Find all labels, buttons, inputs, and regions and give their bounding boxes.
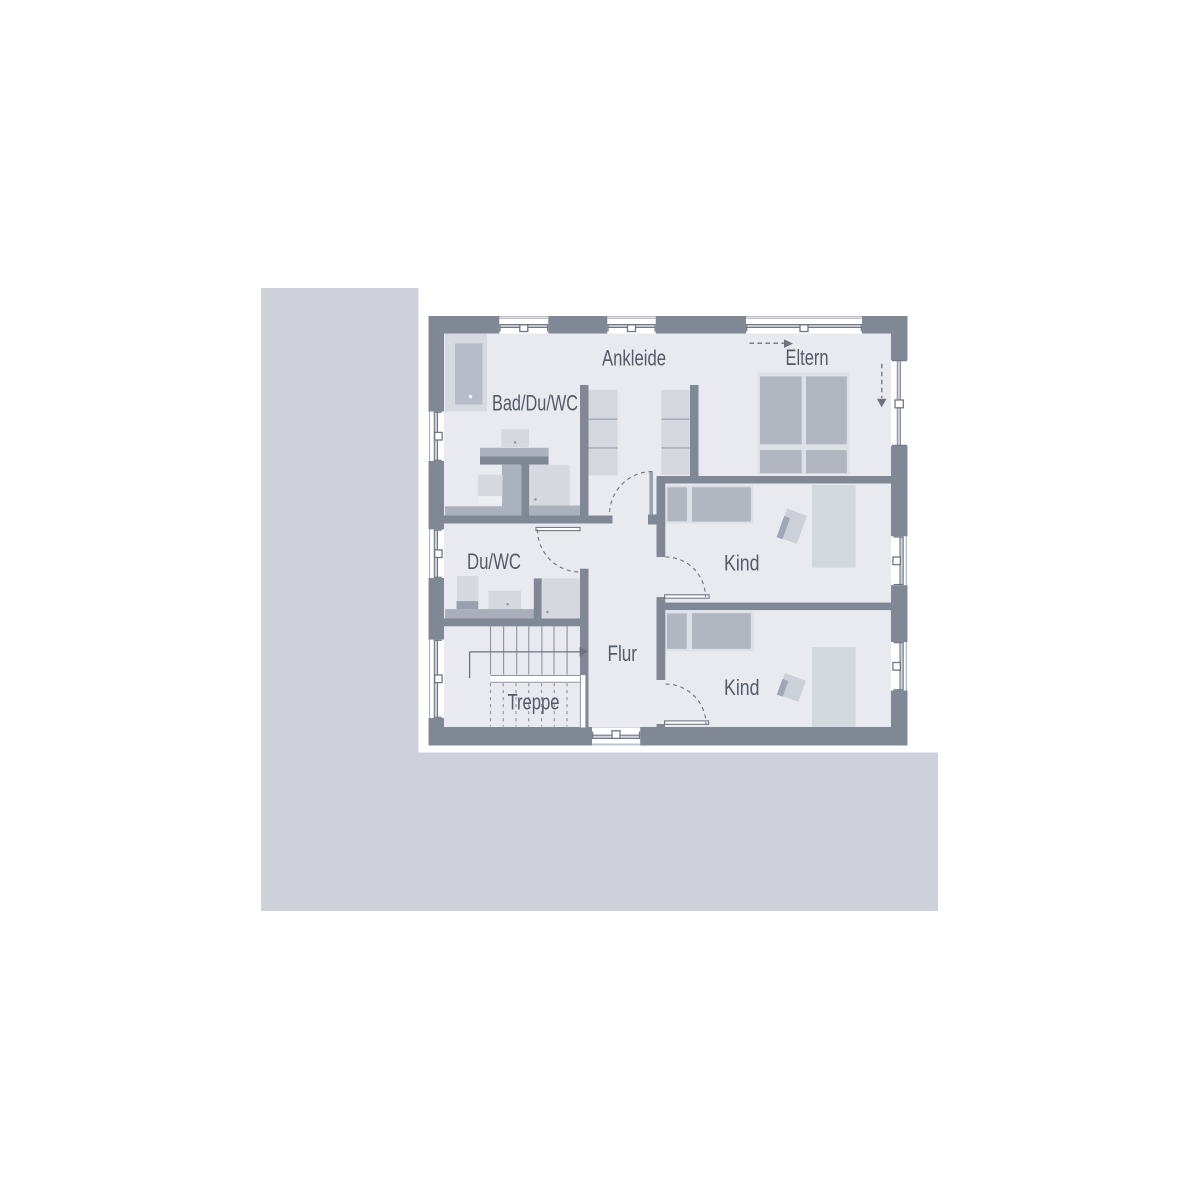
svg-text:Ankleide: Ankleide [602,346,666,371]
svg-text:Treppe: Treppe [508,690,560,715]
svg-text:Eltern: Eltern [786,345,829,370]
svg-text:Kind: Kind [724,551,760,576]
svg-text:Du/WC: Du/WC [467,549,521,574]
svg-text:Kind: Kind [724,675,760,700]
svg-text:Flur: Flur [608,641,638,666]
svg-text:Bad/Du/WC: Bad/Du/WC [492,391,578,416]
